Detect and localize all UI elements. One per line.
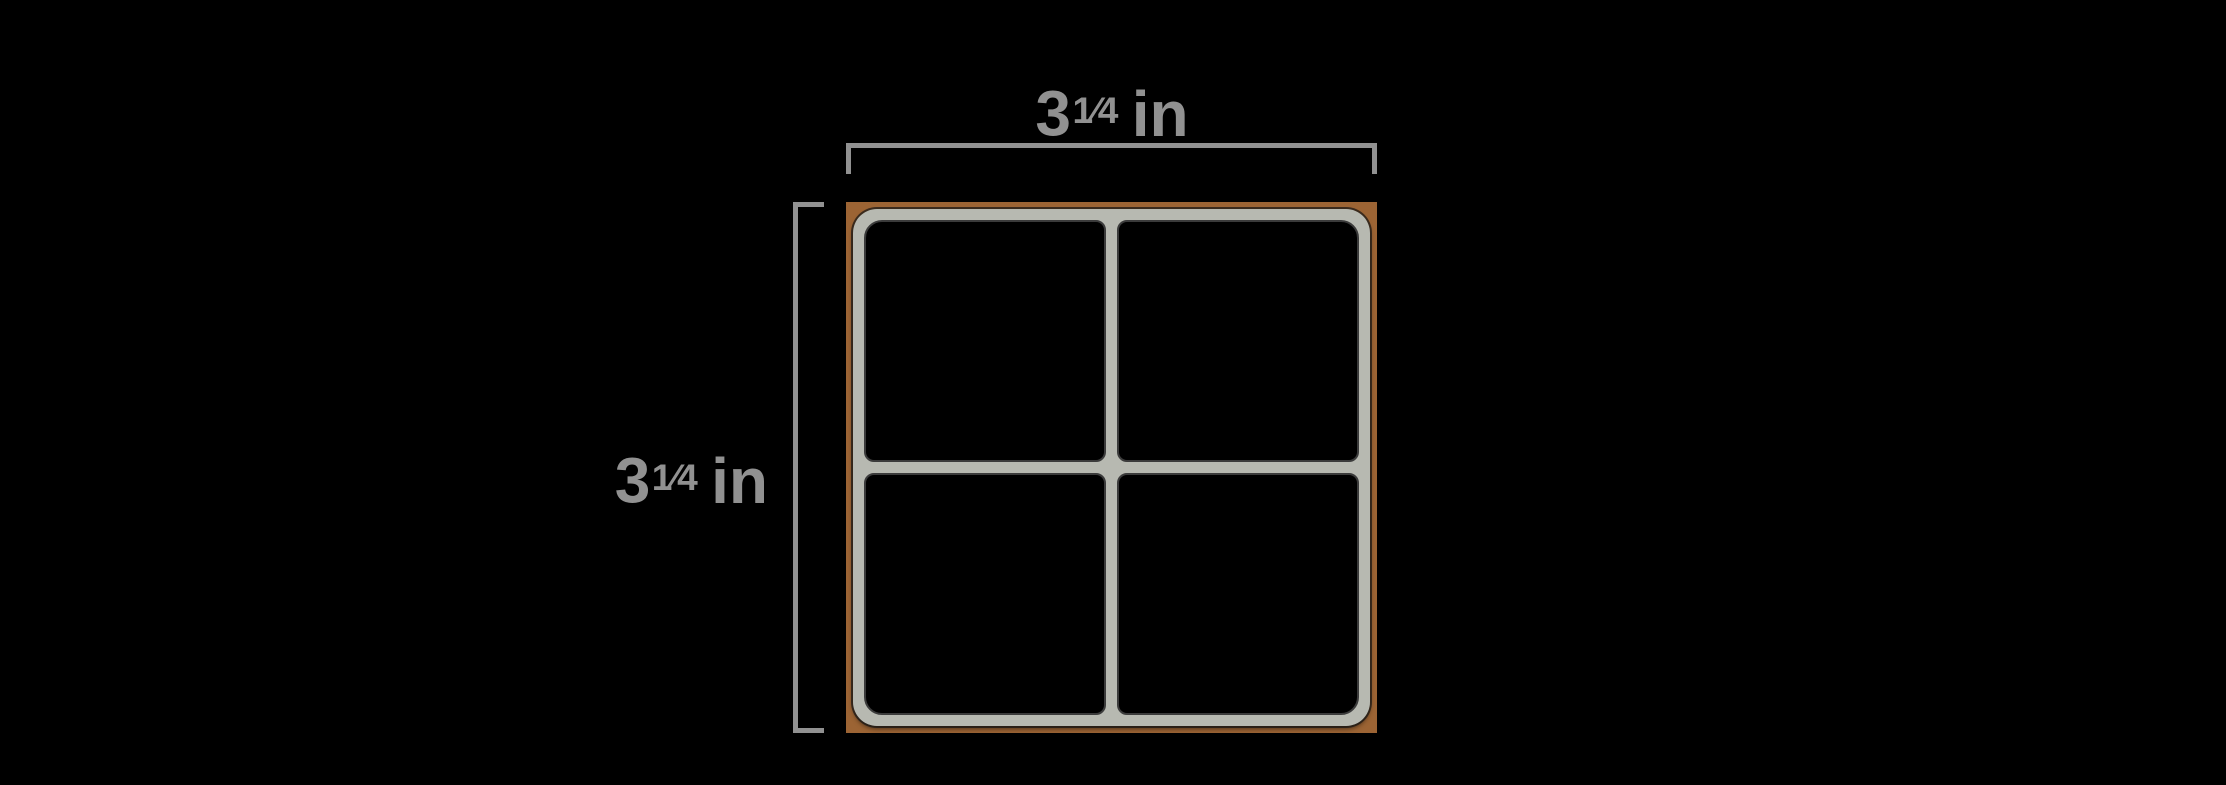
label-pane bbox=[864, 473, 1106, 715]
label-pane bbox=[1117, 220, 1359, 462]
label-sheet bbox=[846, 202, 1377, 733]
width-dimension-bracket bbox=[846, 143, 1377, 174]
width-dimension-label: 31⁄4in bbox=[862, 78, 1362, 146]
height-unit: in bbox=[711, 445, 768, 517]
diagram-canvas: 31⁄4in 31⁄4in bbox=[0, 0, 2226, 785]
width-fraction: 1⁄4 bbox=[1072, 89, 1117, 131]
label-frame bbox=[853, 209, 1370, 726]
width-unit: in bbox=[1132, 78, 1189, 150]
width-whole-number: 3 bbox=[1035, 78, 1071, 150]
height-dimension-label: 31⁄4in bbox=[418, 445, 768, 513]
label-grid bbox=[864, 220, 1359, 715]
height-dimension-bracket bbox=[793, 202, 824, 733]
height-whole-number: 3 bbox=[615, 445, 651, 517]
label-pane bbox=[864, 220, 1106, 462]
height-fraction: 1⁄4 bbox=[652, 456, 697, 498]
label-pane bbox=[1117, 473, 1359, 715]
